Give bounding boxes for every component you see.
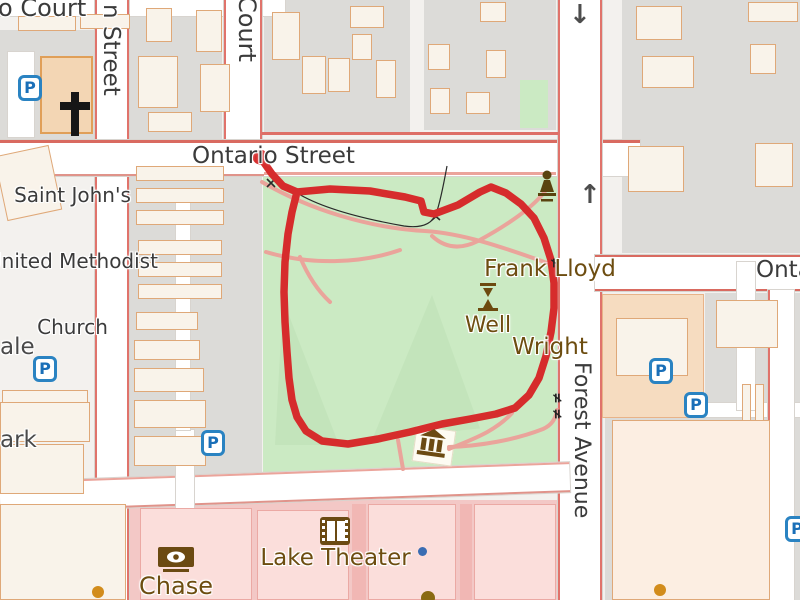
- parking-icon: P: [18, 75, 42, 101]
- building: [466, 92, 490, 114]
- rowhouse: [134, 400, 206, 428]
- building: [750, 44, 776, 74]
- building: [748, 2, 798, 22]
- building: [716, 300, 778, 348]
- building: [486, 50, 506, 78]
- building: [352, 34, 372, 60]
- street-label-court: Court: [233, 0, 259, 62]
- poi-dot-orange: [654, 584, 666, 596]
- parking-icon: P: [201, 430, 225, 456]
- building: [138, 56, 178, 108]
- flw-label-line: Frank Lloyd: [470, 256, 630, 282]
- retail-building: [474, 504, 556, 600]
- building: [272, 12, 300, 60]
- park-area: [520, 80, 548, 128]
- lake-theater-label: Lake Theater: [258, 546, 413, 571]
- parking-icon: P: [649, 358, 673, 384]
- church-label-line: United Methodist: [0, 250, 175, 272]
- place-label-fragment: ale ark: [0, 270, 37, 518]
- parking-icon: P: [785, 516, 800, 542]
- street-label-ontario: Ontario Street: [192, 144, 355, 169]
- street-label-ontario-east: Ontario: [756, 258, 800, 283]
- place-label-line: ale: [0, 332, 37, 363]
- poi-dot-blue: [418, 547, 427, 556]
- building: [428, 44, 450, 70]
- rowhouse: [134, 436, 206, 466]
- frank-lloyd-wright-label: Frank Lloyd Wright: [470, 204, 630, 412]
- building: [480, 2, 506, 22]
- street-label-left-street: n Street: [98, 4, 123, 96]
- building: [430, 88, 450, 114]
- street-label-court-top: o Court: [0, 0, 86, 22]
- building: [200, 64, 230, 112]
- building: [148, 112, 192, 132]
- church-label-line: Saint John's: [0, 184, 175, 206]
- well-label: Well: [458, 314, 518, 338]
- building: [350, 6, 384, 28]
- parking-icon: P: [684, 392, 708, 418]
- place-label-line: ark: [0, 425, 37, 456]
- building: [302, 56, 326, 94]
- poi-dot-brown: [421, 591, 435, 600]
- poi-dot-orange: [92, 586, 104, 598]
- park-edge-line: [264, 172, 556, 175]
- building: [196, 10, 222, 52]
- building: [0, 504, 126, 600]
- building: [628, 146, 684, 192]
- oneway-arrow-down-icon: ↓: [569, 0, 591, 30]
- memorial-plaza: [412, 425, 457, 466]
- building: [636, 6, 682, 40]
- chase-label: Chase: [138, 574, 214, 600]
- retail-aisle: [460, 504, 472, 600]
- map-canvas[interactable]: P P P P P P ↓ ↑ ≠ ≠ ≠ o Court n Street C…: [0, 0, 800, 600]
- building: [642, 56, 694, 88]
- building: [328, 58, 350, 92]
- building-large: [612, 420, 770, 600]
- street-edge-line: [262, 132, 558, 135]
- building: [146, 8, 172, 42]
- building: [755, 143, 793, 187]
- building: [376, 60, 396, 98]
- church-cross-icon: [60, 92, 90, 136]
